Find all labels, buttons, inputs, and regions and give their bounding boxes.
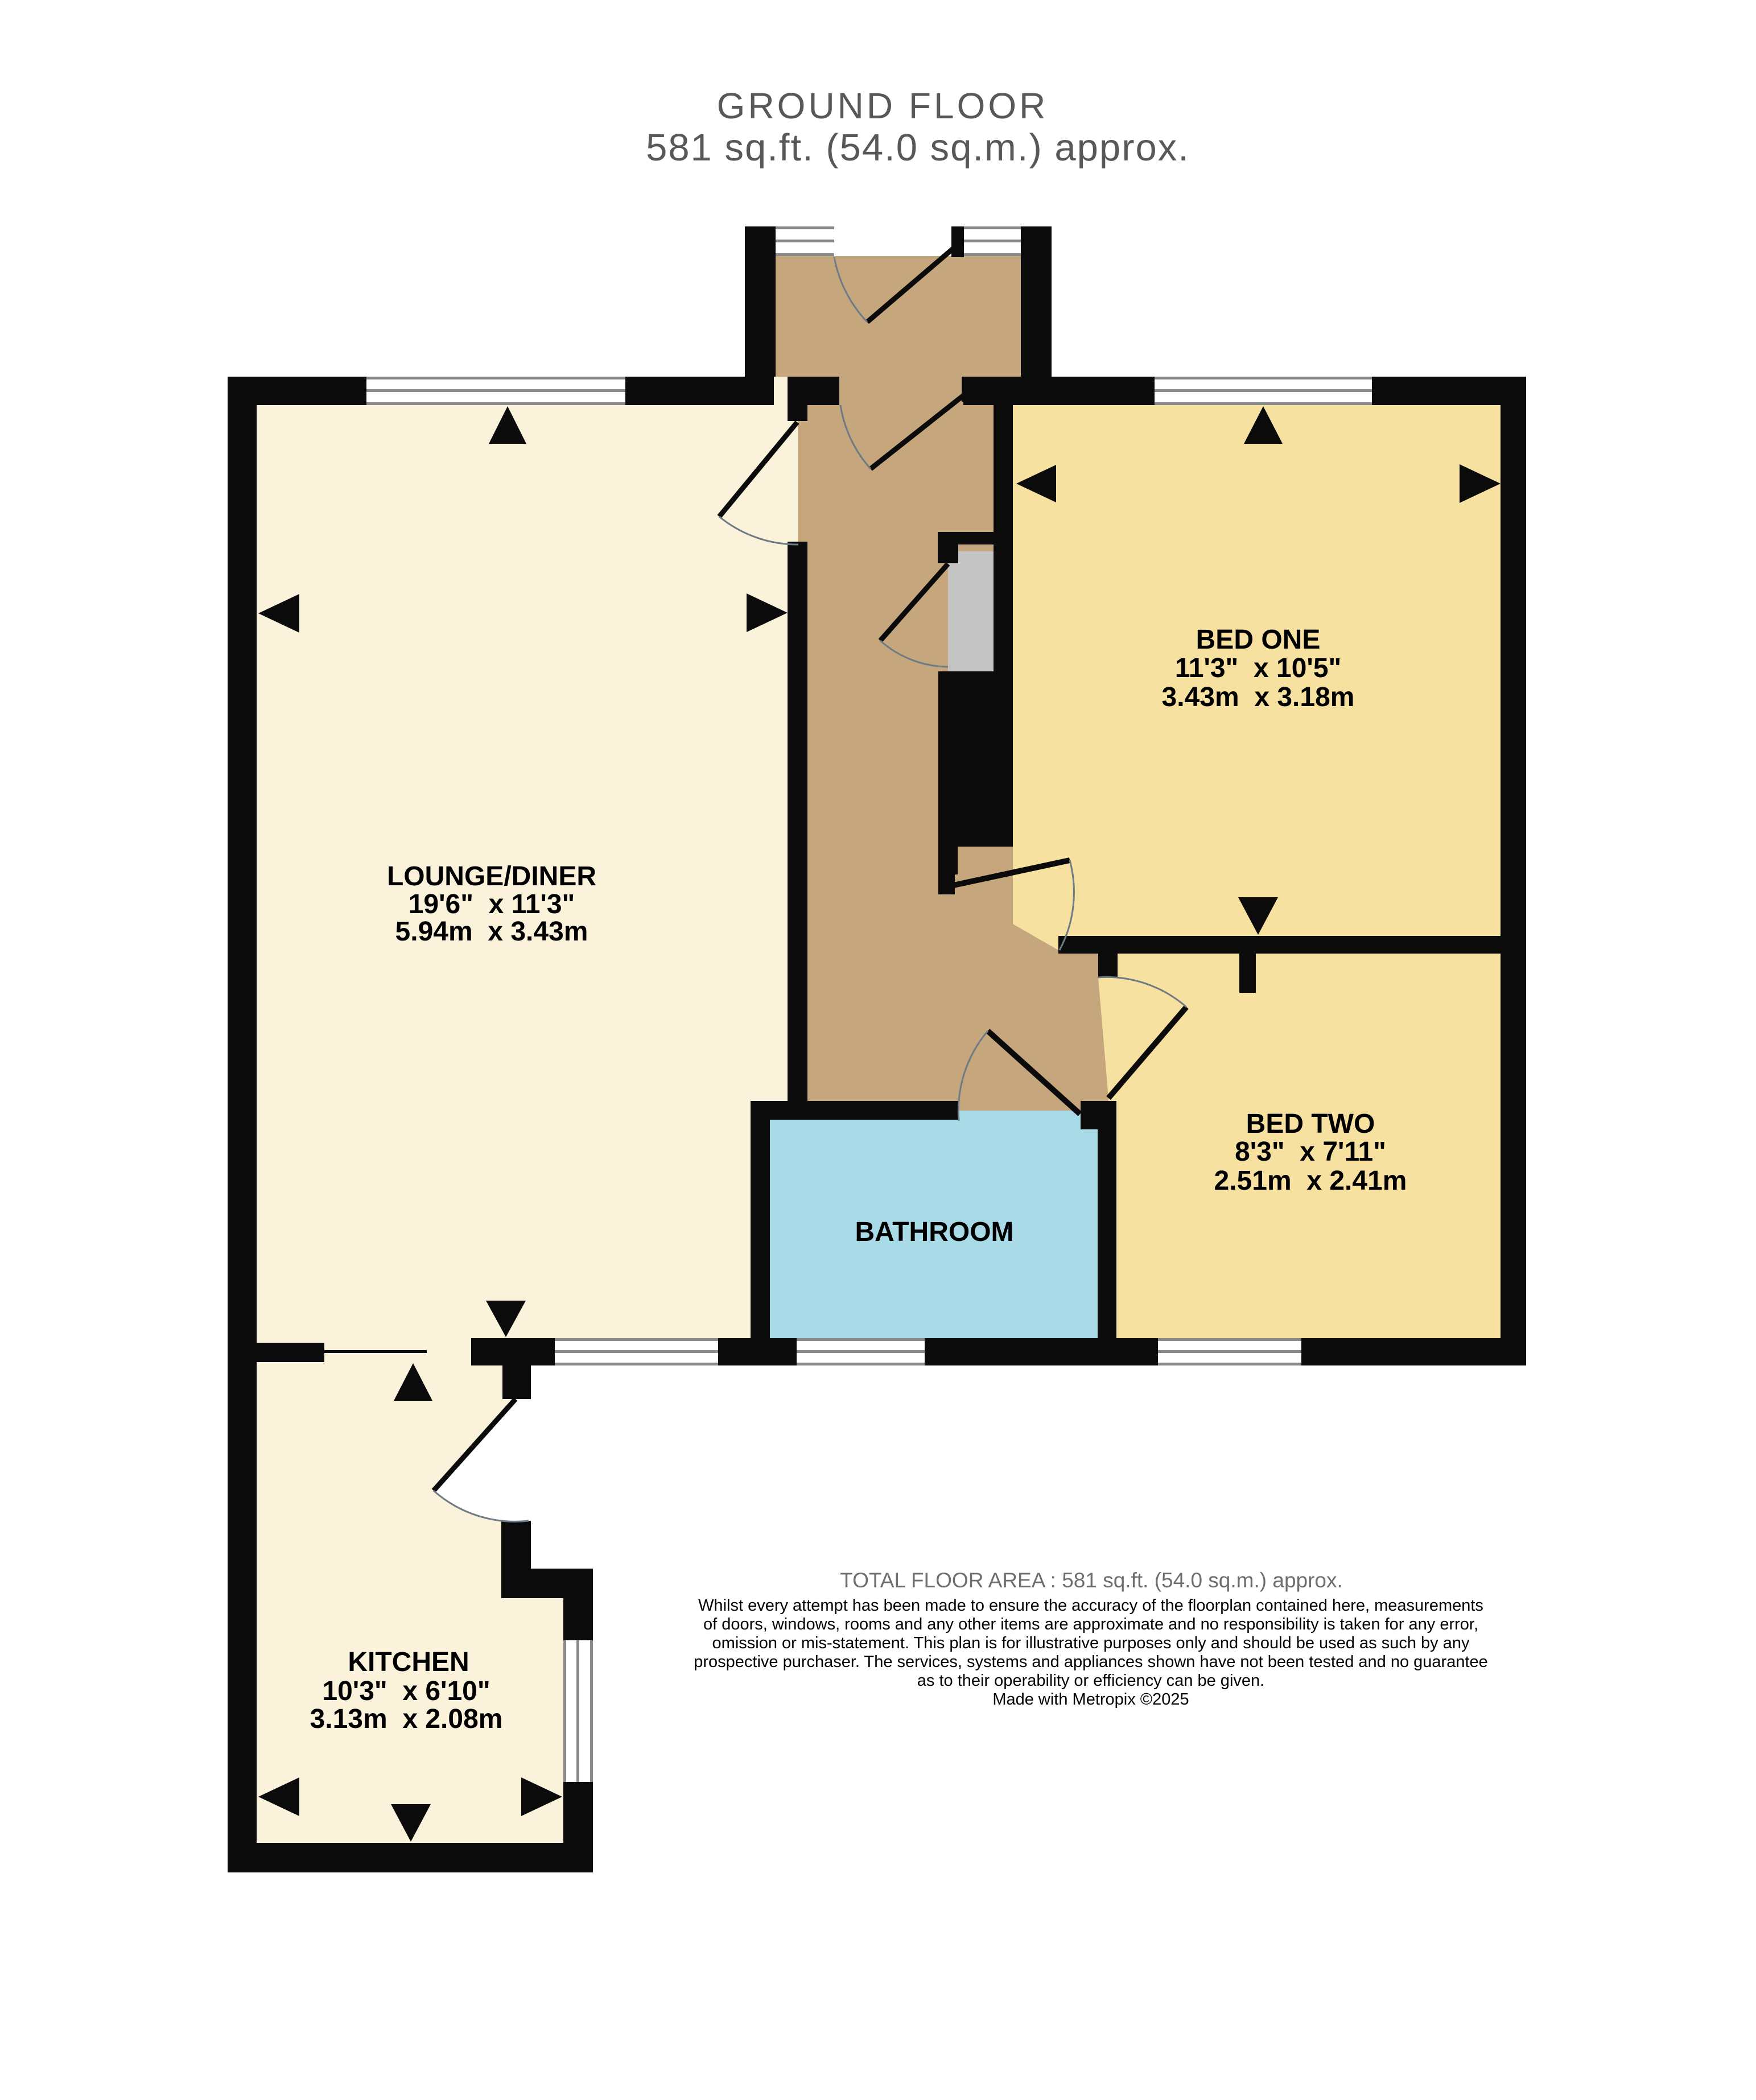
- svg-text:prospective purchaser. The ser: prospective purchaser. The services, sys…: [694, 1653, 1488, 1671]
- svg-text:Whilst every attempt has been: Whilst every attempt has been made to en…: [698, 1596, 1483, 1615]
- svg-text:BATHROOM: BATHROOM: [855, 1217, 1013, 1247]
- svg-text:2.51m x 2.41m: 2.51m x 2.41m: [1214, 1166, 1407, 1196]
- svg-text:19'6" x 11'3": 19'6" x 11'3": [409, 889, 575, 919]
- svg-text:BED TWO: BED TWO: [1246, 1109, 1375, 1139]
- svg-text:BED ONE: BED ONE: [1196, 625, 1321, 655]
- svg-text:of doors, windows, rooms and a: of doors, windows, rooms and any other i…: [703, 1615, 1478, 1633]
- svg-text:as to their operability or eff: as to their operability or efficiency ca…: [917, 1672, 1264, 1690]
- svg-text:11'3" x 10'5": 11'3" x 10'5": [1175, 653, 1342, 683]
- svg-text:10'3" x 6'10": 10'3" x 6'10": [322, 1676, 490, 1706]
- svg-text:GROUND FLOOR: GROUND FLOOR: [717, 85, 1049, 126]
- svg-text:3.43m x 3.18m: 3.43m x 3.18m: [1162, 682, 1355, 712]
- svg-text:omission or mis-statement. Thi: omission or mis-statement. This plan is …: [712, 1634, 1470, 1652]
- svg-text:KITCHEN: KITCHEN: [348, 1647, 469, 1677]
- svg-text:8'3" x 7'11": 8'3" x 7'11": [1235, 1137, 1386, 1167]
- svg-text:TOTAL FLOOR AREA : 581 sq.ft.: TOTAL FLOOR AREA : 581 sq.ft. (54.0 sq.m…: [840, 1569, 1343, 1592]
- svg-text:LOUNGE/DINER: LOUNGE/DINER: [387, 861, 596, 892]
- svg-text:5.94m x 3.43m: 5.94m x 3.43m: [395, 917, 588, 947]
- svg-text:Made with Metropix ©2025: Made with Metropix ©2025: [992, 1690, 1189, 1709]
- svg-text:581 sq.ft. (54.0 sq.m.) approx: 581 sq.ft. (54.0 sq.m.) approx.: [646, 126, 1190, 169]
- svg-text:3.13m x 2.08m: 3.13m x 2.08m: [310, 1704, 503, 1734]
